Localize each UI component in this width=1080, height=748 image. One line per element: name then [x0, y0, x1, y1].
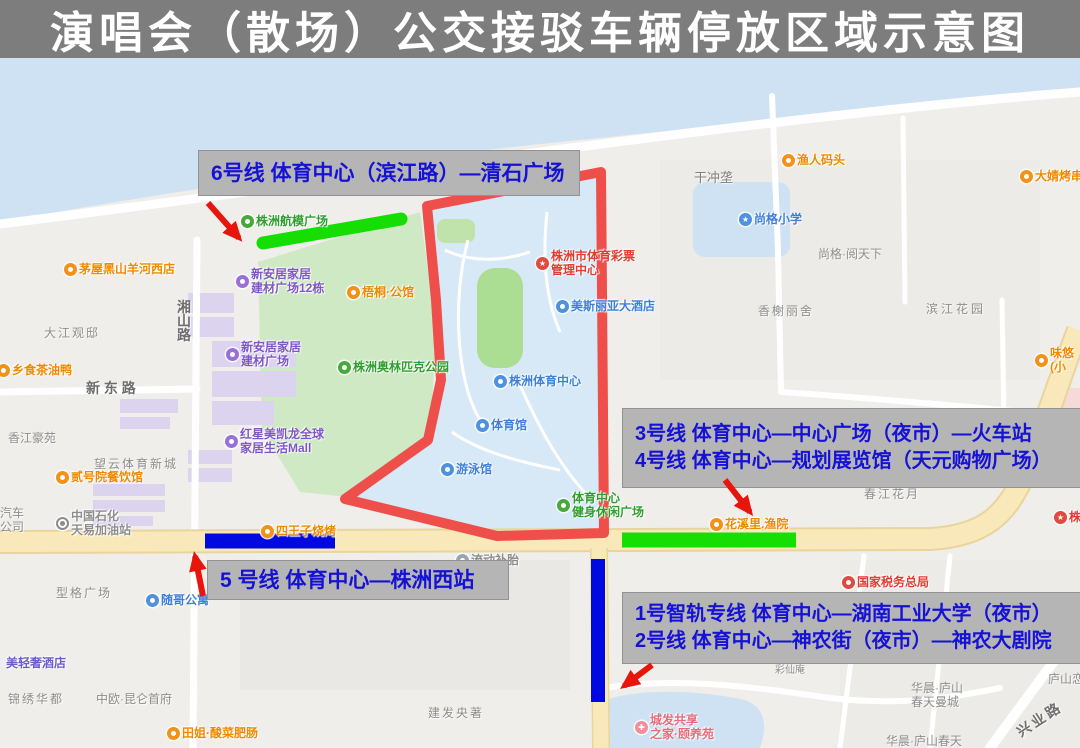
annotation-line1-text: 1号智轨专线 体育中心—湖南工业大学（夜市） [635, 601, 1079, 628]
annotation-line12: 1号智轨专线 体育中心—湖南工业大学（夜市） 2号线 体育中心—神农街（夜市）—… [622, 592, 1080, 664]
page-title: 演唱会（散场）公交接驳车辆停放区域示意图 [50, 0, 1030, 61]
annotation-line3-text: 3号线 体育中心—中心广场（夜市）—火车站 [635, 421, 1079, 448]
annotation-line34: 3号线 体育中心—中心广场（夜市）—火车站 4号线 体育中心—规划展览馆（天元购… [622, 408, 1080, 488]
title-bar: 演唱会（散场）公交接驳车辆停放区域示意图 [0, 0, 1080, 58]
annotation-layer: 6号线 体育中心（滨江路）—清石广场 3号线 体育中心—中心广场（夜市）—火车站… [0, 0, 1080, 748]
annotation-line2-text: 2号线 体育中心—神农街（夜市）—神农大剧院 [635, 628, 1079, 655]
map-canvas[interactable]: 干冲垄尚格·阅天下香榭丽舍滨江花园大江观邸香江豪苑望云体育新城汽车公司型格广场锦… [0, 0, 1080, 748]
annotation-line6: 6号线 体育中心（滨江路）—清石广场 [198, 150, 580, 196]
annotation-line5-text: 5 号线 体育中心—株洲西站 [220, 567, 496, 594]
annotation-line5: 5 号线 体育中心—株洲西站 [207, 560, 509, 600]
annotation-line4-text: 4号线 体育中心—规划展览馆（天元购物广场） [635, 448, 1079, 475]
annotation-line6-text: 6号线 体育中心（滨江路）—清石广场 [211, 160, 567, 187]
